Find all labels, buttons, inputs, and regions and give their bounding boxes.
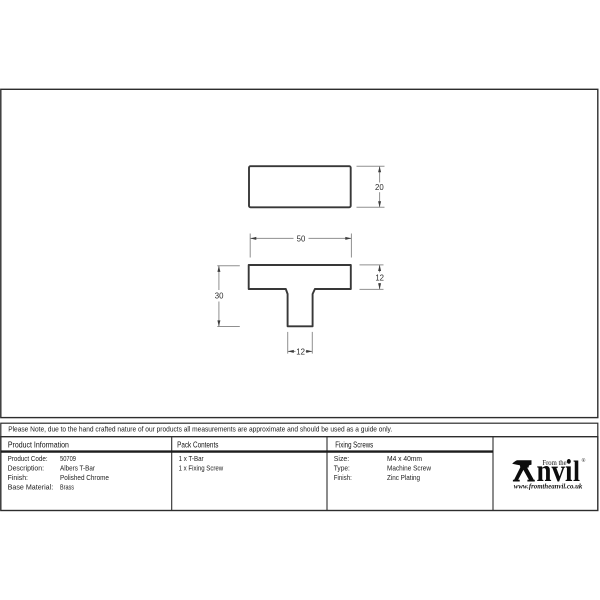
svg-text:®: ® xyxy=(582,457,586,464)
svg-text:Description:: Description: xyxy=(8,463,44,472)
svg-text:Finish:: Finish: xyxy=(334,473,352,482)
svg-text:1 x Fixing Screw: 1 x Fixing Screw xyxy=(179,463,224,472)
svg-text:Type:: Type: xyxy=(334,463,350,472)
svg-text:Machine Screw: Machine Screw xyxy=(387,463,432,472)
svg-text:1 x T-Bar: 1 x T-Bar xyxy=(179,454,204,463)
svg-text:Pack Contents: Pack Contents xyxy=(177,440,218,450)
svg-text:Product Code:: Product Code: xyxy=(8,454,48,463)
svg-text:M4 x 40mm: M4 x 40mm xyxy=(387,454,422,463)
svg-text:www.fromtheanvil.co.uk: www.fromtheanvil.co.uk xyxy=(514,483,583,491)
svg-text:50709: 50709 xyxy=(60,454,76,463)
svg-text:Albers T-Bar: Albers T-Bar xyxy=(60,463,95,472)
svg-text:Please Note, due to the hand c: Please Note, due to the hand crafted nat… xyxy=(8,424,392,433)
svg-text:Brass: Brass xyxy=(60,483,74,492)
svg-text:Polished Chrome: Polished Chrome xyxy=(60,473,109,482)
svg-text:Finish:: Finish: xyxy=(8,473,28,482)
svg-text:30: 30 xyxy=(215,292,224,301)
svg-text:Zinc Plating: Zinc Plating xyxy=(387,473,420,482)
svg-text:Size:: Size: xyxy=(334,454,349,463)
svg-text:12: 12 xyxy=(296,348,305,357)
svg-text:20: 20 xyxy=(375,183,384,192)
svg-text:Fixing Screws: Fixing Screws xyxy=(335,440,373,450)
svg-text:Base Material:: Base Material: xyxy=(8,483,54,492)
svg-text:12: 12 xyxy=(375,273,384,282)
svg-text:Product Information: Product Information xyxy=(8,440,69,450)
svg-text:50: 50 xyxy=(297,234,306,243)
